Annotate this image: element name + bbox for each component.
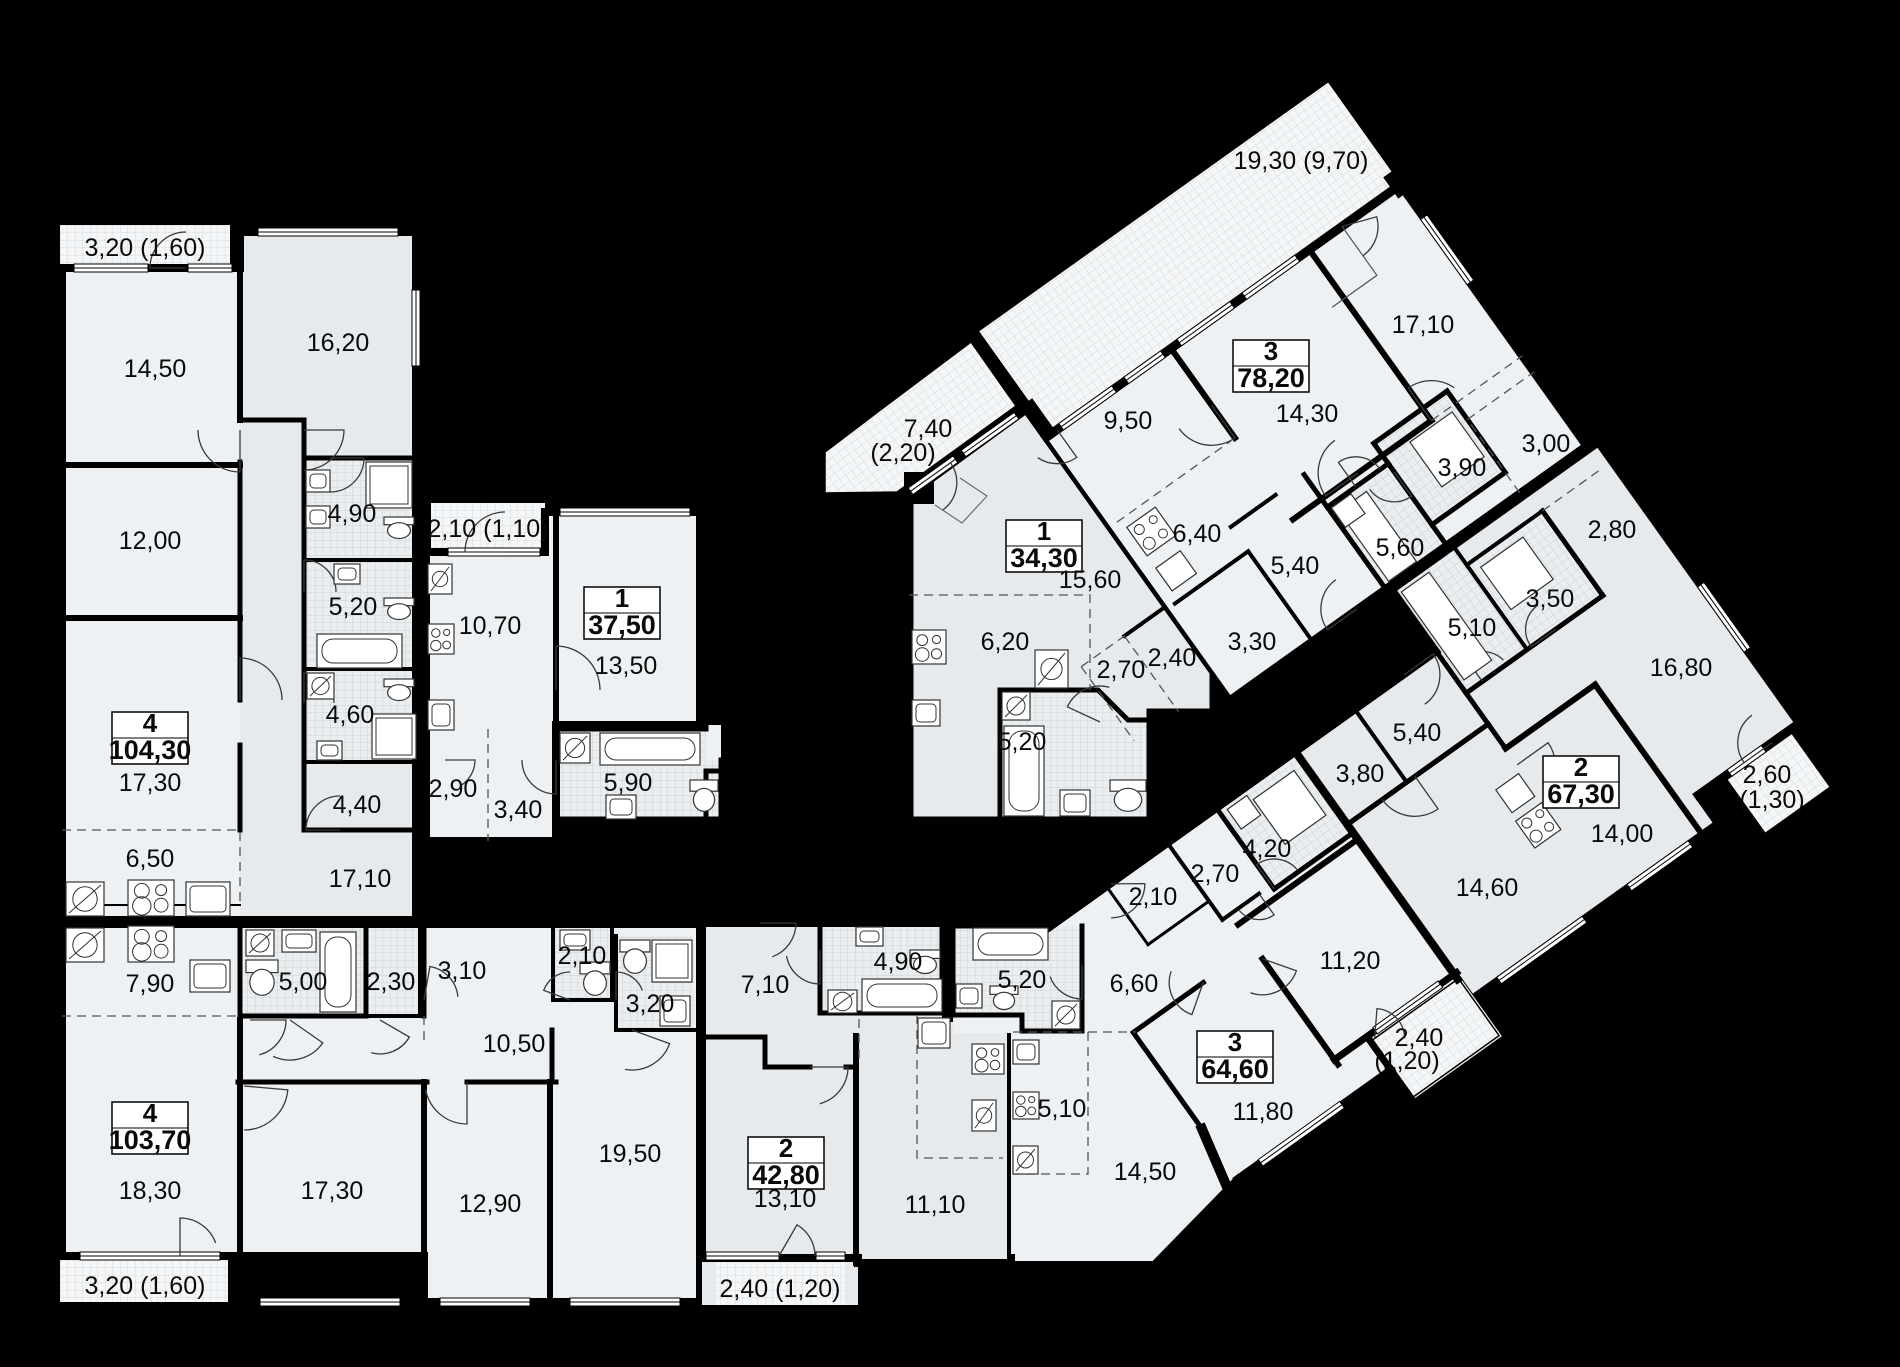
svg-text:17,30: 17,30: [119, 769, 182, 797]
svg-text:14,50: 14,50: [124, 355, 187, 383]
svg-text:3,50: 3,50: [1526, 585, 1575, 613]
svg-text:7,90: 7,90: [126, 970, 175, 998]
svg-text:6,20: 6,20: [981, 628, 1030, 656]
svg-text:4,40: 4,40: [333, 791, 382, 819]
svg-text:19,50: 19,50: [599, 1140, 662, 1168]
svg-text:3,80: 3,80: [1336, 760, 1385, 788]
svg-text:3,30: 3,30: [1228, 628, 1277, 656]
svg-text:4,90: 4,90: [328, 500, 377, 528]
svg-text:1: 1: [1037, 516, 1051, 546]
svg-text:4: 4: [143, 708, 158, 738]
svg-text:4,20: 4,20: [1243, 835, 1292, 863]
svg-text:3,90: 3,90: [1438, 454, 1487, 482]
svg-text:6,40: 6,40: [1173, 520, 1222, 548]
svg-text:14,30: 14,30: [1276, 400, 1339, 428]
svg-text:13,50: 13,50: [595, 652, 658, 680]
svg-text:3,20: 3,20: [626, 990, 675, 1018]
svg-text:37,50: 37,50: [588, 610, 656, 640]
svg-text:9,50: 9,50: [1104, 407, 1153, 435]
svg-text:5,20: 5,20: [998, 728, 1047, 756]
svg-text:14,60: 14,60: [1456, 874, 1519, 902]
svg-text:16,20: 16,20: [307, 329, 370, 357]
svg-text:3: 3: [1264, 336, 1278, 366]
svg-text:(1,30): (1,30): [1739, 786, 1804, 814]
svg-text:42,80: 42,80: [752, 1160, 820, 1190]
svg-text:67,30: 67,30: [1547, 779, 1615, 809]
svg-text:6,60: 6,60: [1110, 970, 1159, 998]
svg-text:1: 1: [615, 583, 629, 613]
svg-text:5,20: 5,20: [998, 966, 1047, 994]
svg-text:2,40 (1,20): 2,40 (1,20): [720, 1275, 841, 1303]
svg-text:19,30 (9,70): 19,30 (9,70): [1234, 147, 1369, 175]
svg-text:12,00: 12,00: [119, 527, 182, 555]
svg-text:4,90: 4,90: [874, 948, 923, 976]
svg-text:2: 2: [1574, 752, 1588, 782]
svg-text:5,00: 5,00: [279, 968, 328, 996]
svg-text:5,10: 5,10: [1038, 1095, 1087, 1123]
svg-text:2,10: 2,10: [1129, 883, 1178, 911]
svg-text:2,80: 2,80: [1588, 516, 1637, 544]
svg-text:(2,20): (2,20): [870, 439, 935, 467]
svg-text:3,20 (1,60): 3,20 (1,60): [85, 1272, 206, 1300]
svg-text:2: 2: [779, 1133, 793, 1163]
svg-text:14,00: 14,00: [1591, 820, 1654, 848]
svg-text:4,60: 4,60: [326, 701, 375, 729]
svg-text:2,40: 2,40: [1148, 644, 1197, 672]
svg-text:5,60: 5,60: [1376, 534, 1425, 562]
svg-text:3,20 (1,60): 3,20 (1,60): [85, 234, 206, 262]
svg-text:10,50: 10,50: [483, 1030, 546, 1058]
svg-text:2,70: 2,70: [1191, 860, 1240, 888]
svg-text:17,10: 17,10: [329, 865, 392, 893]
svg-text:2,30: 2,30: [367, 968, 416, 996]
svg-text:11,80: 11,80: [1233, 1098, 1294, 1126]
svg-text:12,90: 12,90: [459, 1190, 522, 1218]
svg-text:2,60: 2,60: [1743, 761, 1792, 789]
svg-text:18,30: 18,30: [119, 1177, 182, 1205]
svg-text:2,70: 2,70: [1097, 656, 1146, 684]
svg-text:2,10 (1,10): 2,10 (1,10): [428, 515, 549, 543]
svg-text:3,00: 3,00: [1522, 430, 1571, 458]
svg-text:17,10: 17,10: [1392, 311, 1455, 339]
svg-text:78,20: 78,20: [1237, 363, 1305, 393]
svg-text:2,90: 2,90: [429, 775, 478, 803]
svg-text:104,30: 104,30: [109, 735, 192, 765]
svg-text:103,70: 103,70: [109, 1125, 192, 1155]
svg-text:10,70: 10,70: [459, 612, 522, 640]
svg-text:5,90: 5,90: [604, 769, 653, 797]
svg-text:(1,20): (1,20): [1374, 1047, 1439, 1075]
svg-text:5,40: 5,40: [1271, 552, 1320, 580]
svg-text:17,30: 17,30: [301, 1177, 364, 1205]
svg-text:5,10: 5,10: [1448, 614, 1497, 642]
svg-text:7,10: 7,10: [741, 971, 790, 999]
svg-text:15,60: 15,60: [1059, 566, 1122, 594]
svg-text:3,40: 3,40: [494, 796, 543, 824]
svg-text:4: 4: [143, 1098, 158, 1128]
svg-text:3,10: 3,10: [438, 957, 487, 985]
svg-text:11,20: 11,20: [1320, 947, 1381, 975]
svg-text:2,10: 2,10: [558, 942, 607, 970]
svg-text:14,50: 14,50: [1114, 1158, 1177, 1186]
svg-text:3: 3: [1228, 1027, 1242, 1057]
svg-text:11,10: 11,10: [905, 1191, 966, 1219]
svg-text:5,20: 5,20: [329, 593, 378, 621]
svg-text:16,80: 16,80: [1650, 654, 1713, 682]
svg-text:64,60: 64,60: [1201, 1054, 1269, 1084]
svg-text:5,40: 5,40: [1393, 719, 1442, 747]
svg-text:6,50: 6,50: [126, 845, 175, 873]
